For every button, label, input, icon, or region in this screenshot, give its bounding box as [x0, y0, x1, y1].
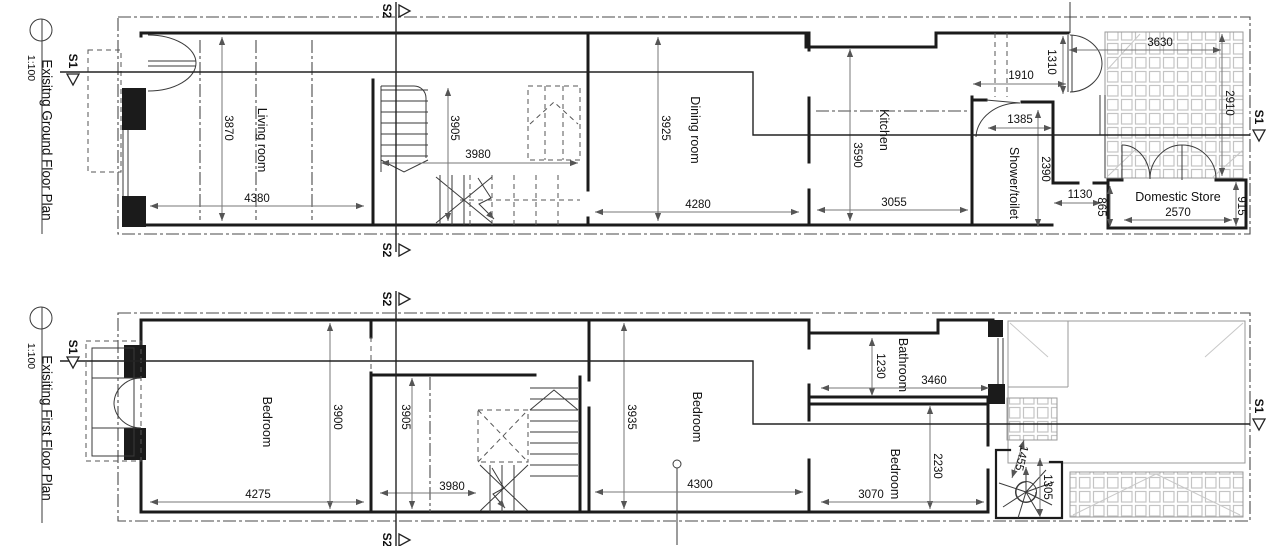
svg-text:S2: S2: [380, 533, 394, 546]
room-label-bedroom-front: Bedroom: [260, 397, 274, 448]
section-marker-s1-left-ground: S1: [66, 54, 80, 85]
dim-hall-w: 3980: [465, 149, 491, 161]
svg-text:S2: S2: [380, 292, 394, 307]
section-lines: S2 S2 S2 S2 S1 S1 S1 S1: [60, 2, 1266, 546]
dim-hall-h: 3905: [399, 404, 411, 430]
section-arrow-icon: [399, 244, 410, 256]
floor-plan-sheet: Exisitng Ground Floor Plan 1:100 Exisiti…: [0, 0, 1280, 546]
rear-hall-dashed: [995, 33, 1007, 97]
dim-dining-w: 4280: [685, 199, 711, 211]
svg-text:S1: S1: [66, 54, 80, 69]
dim-spiral-h: 1305: [1041, 474, 1053, 500]
first-title-block: Exisiting First Floor Plan 1:100: [25, 307, 55, 523]
section-line-s1-first: [60, 361, 1250, 424]
dim-bathroom-w: 3460: [921, 375, 947, 387]
section-marker-s2-bottom-ground: S2: [380, 243, 410, 258]
front-window: [123, 130, 128, 196]
dim-bathroom-h: 1230: [874, 353, 886, 379]
dim-kitchen-w: 3055: [881, 197, 907, 209]
rear-pier: [988, 320, 1003, 337]
ground-title-block: Exisitng Ground Floor Plan 1:100: [25, 19, 55, 234]
section-marker-s1-right-ground: S1: [1252, 110, 1266, 141]
ground-floor-plan: Living room Dining room Kitchen Shower/t…: [88, 2, 1250, 234]
svg-text:S1: S1: [1252, 399, 1266, 414]
bay-outline-dashed: [88, 50, 121, 172]
rear-window: [998, 338, 1003, 384]
first-floor-plan: Bedroom Bedroom Bedroom Bathroom 3900 42…: [86, 313, 1250, 545]
section-arrow-icon: [1253, 130, 1265, 141]
section-arrow-icon: [67, 74, 79, 85]
room-label-store: Domestic Store: [1135, 190, 1220, 204]
dim-store-w: 2570: [1165, 207, 1191, 219]
first-floor-title: Exisiting First Floor Plan: [40, 355, 55, 501]
section-arrow-icon: [67, 357, 79, 368]
drawing-symbol-circle: [30, 19, 52, 41]
dim-patio-w: 3630: [1147, 37, 1173, 49]
rear-pier: [988, 384, 1005, 404]
dim-lobby-h: 865: [1095, 197, 1107, 216]
section-arrow-icon: [1253, 419, 1265, 430]
hall-window: [1100, 95, 1105, 178]
room-label-living: Living room: [255, 108, 269, 173]
section-arrow-icon: [399, 5, 410, 17]
dim-dining-h: 3925: [659, 115, 671, 141]
front-wall-pier: [122, 196, 146, 227]
dim-patio-h: 2910: [1223, 90, 1235, 116]
room-label-shower: Shower/toilet: [1007, 147, 1021, 220]
stair-direction-arrow: [492, 468, 505, 508]
dim-rear-w: 1910: [1008, 70, 1034, 82]
first-dimensions: 3900 4275 3905 3980 3935 4300 1230 3460 …: [150, 323, 1053, 517]
section-arrow-icon: [399, 534, 410, 546]
room-label-dining: Dining room: [688, 96, 702, 163]
room-label-kitchen: Kitchen: [877, 109, 891, 151]
svg-text:S1: S1: [1252, 110, 1266, 125]
dim-bedroom-front-w: 4275: [245, 489, 271, 501]
dim-shower-w: 1385: [1007, 114, 1033, 126]
dim-living-w: 4380: [244, 193, 270, 205]
light-fixture: [673, 460, 681, 545]
ground-interior-walls: [373, 33, 809, 225]
dim-bedroom-front-h: 3900: [331, 404, 343, 430]
bay-window: [86, 341, 146, 461]
front-wall-pier: [122, 88, 146, 130]
dim-lobby-w: 1130: [1068, 189, 1093, 201]
dim-spiral-w: 1455: [1012, 444, 1029, 472]
rear-french-doors: [1068, 35, 1102, 92]
section-marker-s1-left-first: S1: [66, 340, 80, 368]
dim-store-h: 915: [1235, 196, 1247, 215]
dim-living-h: 3870: [222, 115, 234, 141]
dim-bedroom-rear-h: 2230: [931, 453, 943, 479]
dim-bedroom-middle-w: 4300: [687, 479, 713, 491]
room-label-bathroom: Bathroom: [896, 338, 910, 392]
svg-text:S2: S2: [380, 243, 394, 258]
front-entrance-door: [148, 35, 196, 91]
room-label-bedroom-middle: Bedroom: [690, 392, 704, 443]
section-marker-s2-bottom-first: S2: [380, 533, 410, 546]
svg-text:S1: S1: [66, 340, 80, 355]
ground-floor-scale: 1:100: [25, 55, 37, 81]
svg-text:S2: S2: [380, 4, 394, 19]
floor-plan-drawing: Exisitng Ground Floor Plan 1:100 Exisiti…: [0, 0, 1280, 546]
ground-floor-title: Exisitng Ground Floor Plan: [40, 59, 55, 220]
dim-kitchen-h: 3590: [851, 142, 863, 168]
section-arrow-icon: [399, 293, 410, 305]
dim-rear-h: 1310: [1045, 49, 1057, 75]
drawing-symbol-circle: [30, 307, 52, 329]
section-marker-s2-top-ground: S2: [380, 4, 410, 19]
dim-shower-h: 2390: [1039, 156, 1051, 182]
room-label-bedroom-rear: Bedroom: [888, 449, 902, 500]
section-marker-s1-right-first: S1: [1252, 399, 1266, 430]
first-floor-scale: 1:100: [25, 343, 37, 369]
dim-bedroom-rear-w: 3070: [858, 489, 884, 501]
dim-hall-h: 3905: [448, 115, 460, 141]
dim-hall-w: 3980: [439, 481, 465, 493]
dim-bedroom-middle-h: 3935: [625, 404, 637, 430]
section-marker-s2-top-first: S2: [380, 292, 410, 307]
